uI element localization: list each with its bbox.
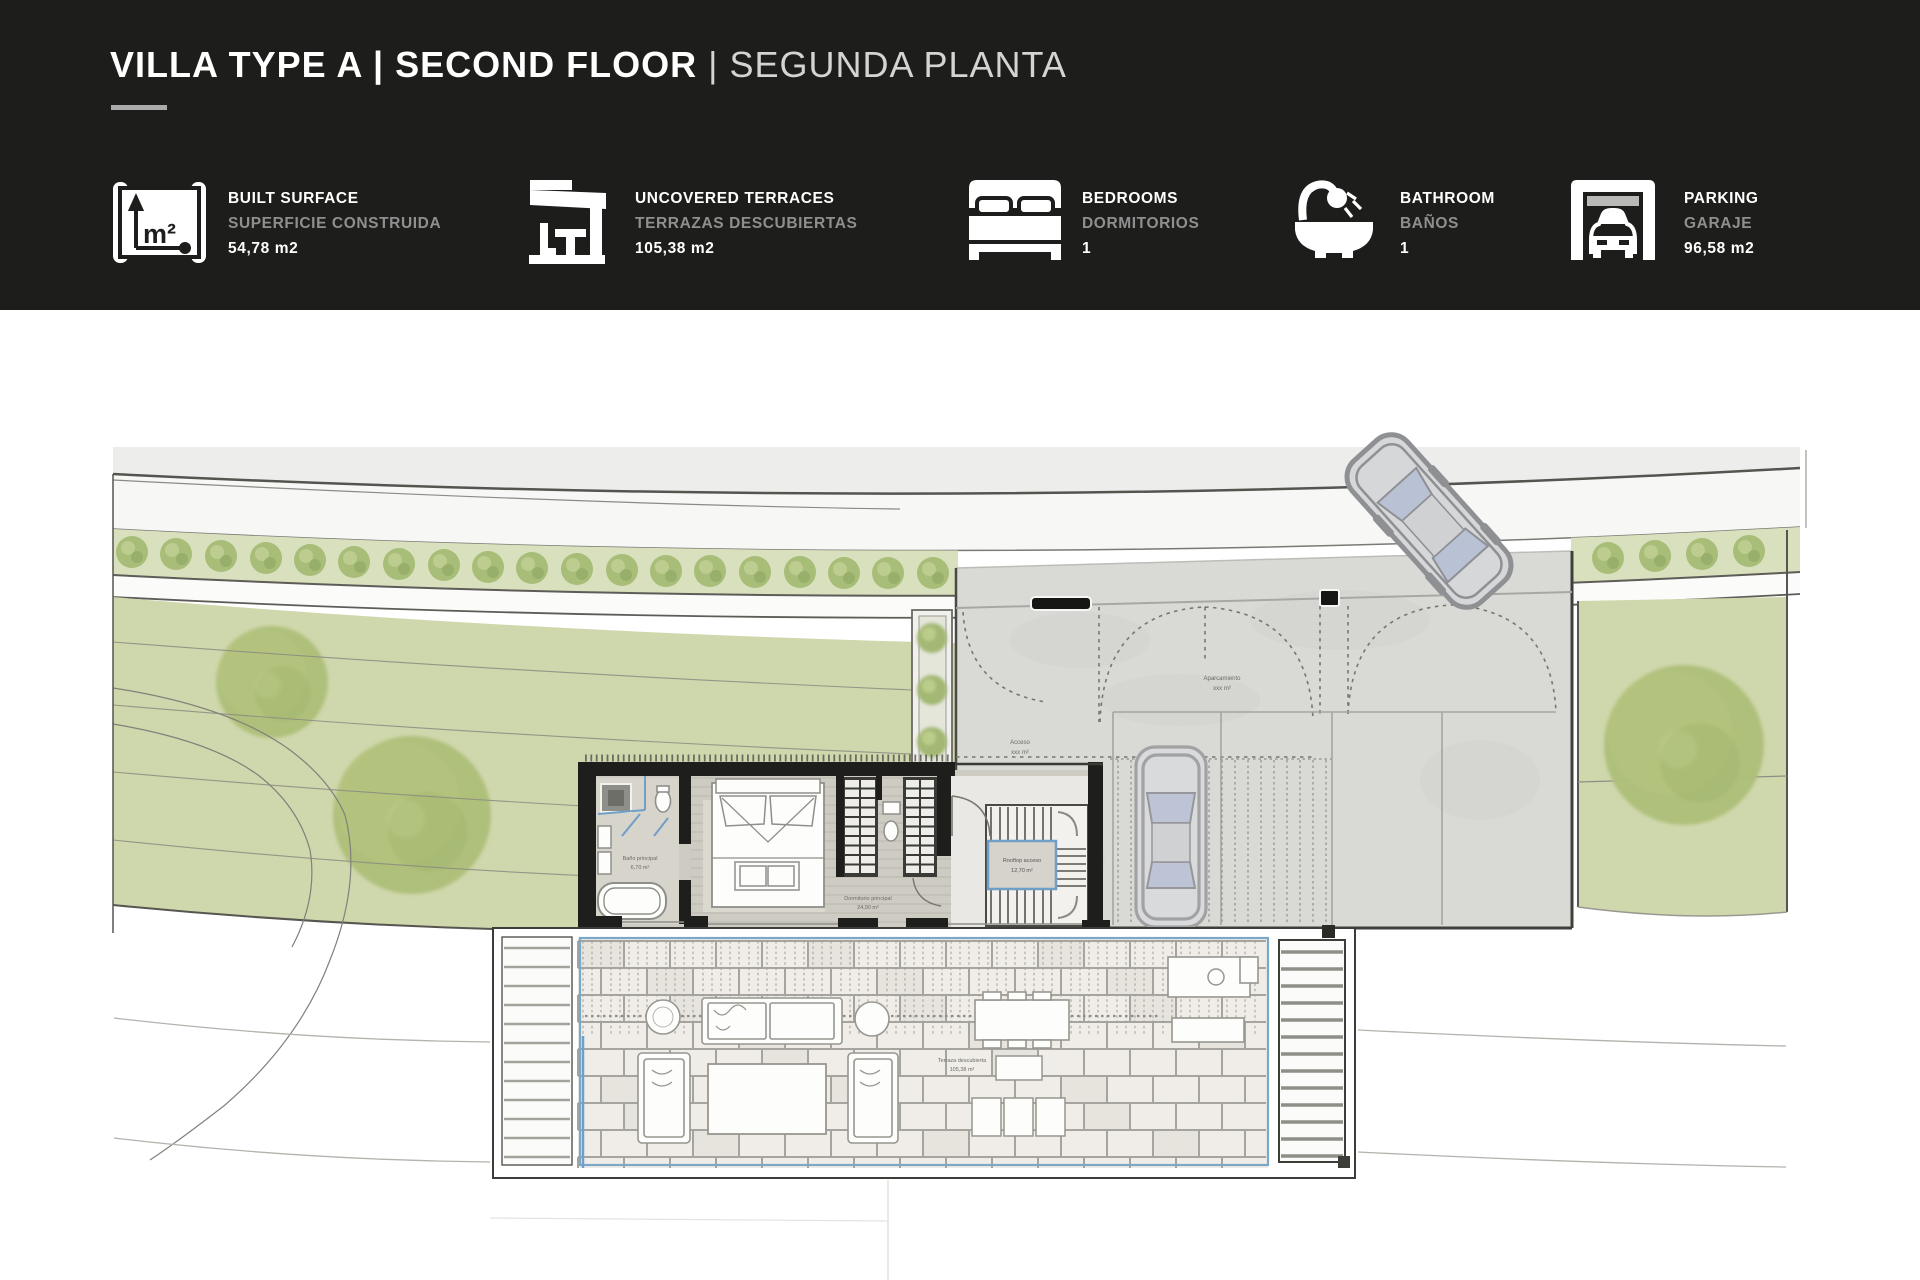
svg-text:xxx m²: xxx m² [1213, 686, 1231, 692]
svg-text:Dormitorio principal: Dormitorio principal [844, 896, 891, 902]
svg-text:Aparcamiento: Aparcamiento [1203, 676, 1241, 682]
svg-text:Rooftop acceso: Rooftop acceso [1003, 858, 1041, 864]
svg-text:Baño principal: Baño principal [623, 856, 658, 862]
svg-text:105,38 m²: 105,38 m² [950, 1067, 975, 1073]
svg-text:xxx m²: xxx m² [1011, 750, 1029, 756]
svg-text:6,70 m²: 6,70 m² [631, 865, 650, 871]
svg-text:12,70 m²: 12,70 m² [1011, 868, 1033, 874]
svg-text:24,90 m²: 24,90 m² [857, 905, 879, 911]
svg-text:Acceso: Acceso [1010, 740, 1030, 746]
svg-text:Terraza descubierta: Terraza descubierta [938, 1058, 987, 1064]
